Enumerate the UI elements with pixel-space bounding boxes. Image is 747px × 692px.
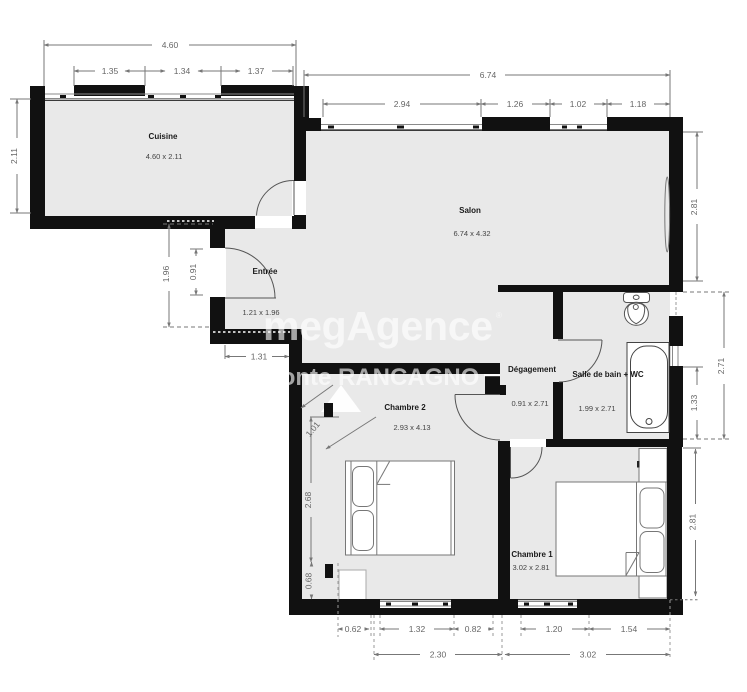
svg-text:Dégagement: Dégagement: [508, 365, 556, 374]
svg-text:1.18: 1.18: [630, 99, 647, 109]
svg-text:1.96: 1.96: [161, 265, 171, 282]
svg-text:2.68: 2.68: [303, 491, 313, 508]
svg-text:Cuisine: Cuisine: [149, 132, 178, 141]
svg-text:Chambre 1: Chambre 1: [511, 550, 553, 559]
svg-text:megAgence: megAgence: [263, 303, 493, 349]
svg-text:2.30: 2.30: [430, 650, 447, 660]
svg-text:6.74 x 4.32: 6.74 x 4.32: [453, 229, 490, 238]
svg-text:0.82: 0.82: [465, 624, 482, 634]
svg-text:1.31: 1.31: [251, 352, 268, 362]
svg-text:1.54: 1.54: [621, 624, 638, 634]
svg-text:0.68: 0.68: [304, 572, 314, 589]
svg-text:2.93 x 4.13: 2.93 x 4.13: [393, 423, 430, 432]
svg-text:1.35: 1.35: [102, 66, 119, 76]
svg-text:amonte RANCAGNO: amonte RANCAGNO: [246, 364, 479, 391]
svg-text:2.81: 2.81: [688, 513, 698, 530]
svg-text:1.21 x 1.96: 1.21 x 1.96: [242, 308, 279, 317]
svg-text:0.62: 0.62: [345, 624, 362, 634]
svg-text:1.20: 1.20: [546, 624, 563, 634]
svg-text:3.02: 3.02: [580, 650, 597, 660]
svg-text:1.37: 1.37: [248, 66, 265, 76]
svg-text:2.81: 2.81: [689, 198, 699, 215]
svg-text:1.02: 1.02: [570, 99, 587, 109]
svg-text:Salle de bain + WC: Salle de bain + WC: [572, 370, 644, 379]
svg-text:Chambre 2: Chambre 2: [384, 403, 426, 412]
svg-text:®: ®: [496, 311, 502, 320]
svg-text:1.33: 1.33: [689, 394, 699, 411]
svg-text:2.11: 2.11: [9, 148, 19, 164]
svg-text:3.02 x 2.81: 3.02 x 2.81: [512, 563, 549, 572]
svg-text:1.99 x 2.71: 1.99 x 2.71: [578, 404, 615, 413]
svg-text:2.94: 2.94: [394, 99, 411, 109]
svg-text:1.26: 1.26: [507, 99, 524, 109]
svg-text:Entrée: Entrée: [253, 267, 278, 276]
svg-text:0.91 x 2.71: 0.91 x 2.71: [511, 399, 548, 408]
svg-text:0.91: 0.91: [188, 263, 198, 280]
svg-text:2.71: 2.71: [716, 357, 726, 374]
svg-text:4.60: 4.60: [162, 40, 179, 50]
svg-text:4.60 x 2.11: 4.60 x 2.11: [146, 152, 183, 161]
svg-text:6.74: 6.74: [480, 70, 497, 80]
svg-text:Salon: Salon: [459, 206, 481, 215]
svg-text:1.34: 1.34: [174, 66, 191, 76]
svg-text:1.32: 1.32: [409, 624, 426, 634]
